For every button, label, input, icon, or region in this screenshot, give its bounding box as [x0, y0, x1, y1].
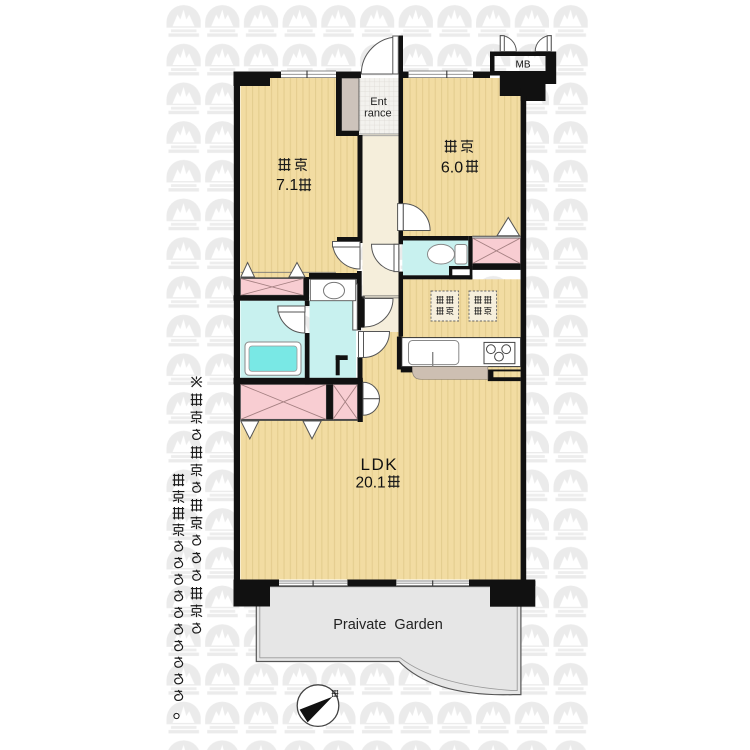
svg-text:Ent: Ent: [370, 96, 387, 108]
svg-text:6.0: 6.0: [441, 160, 463, 177]
svg-text:20.1: 20.1: [356, 475, 386, 492]
svg-text:MB: MB: [516, 60, 531, 71]
svg-text:7.1: 7.1: [276, 177, 298, 194]
svg-text:LDK: LDK: [361, 455, 399, 474]
svg-text:rance: rance: [364, 107, 392, 119]
svg-text:Praivate Garden: Praivate Garden: [333, 617, 443, 633]
